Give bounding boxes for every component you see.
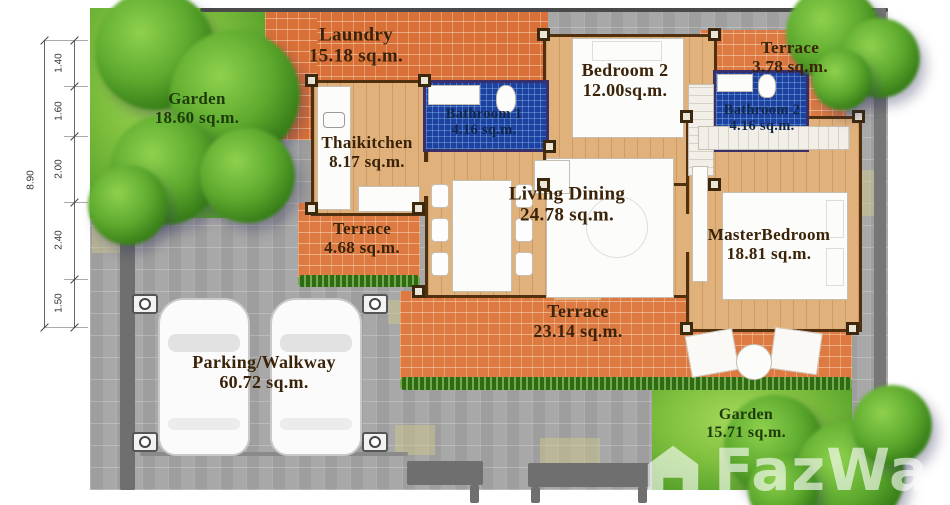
room-area: 60.72 sq.m.	[192, 372, 336, 392]
column-post	[708, 28, 721, 41]
column-post	[708, 178, 721, 191]
room-name: Living Dining	[509, 184, 625, 205]
hedge-west	[298, 275, 420, 287]
bathroom2-vanity	[717, 74, 753, 92]
tree	[200, 128, 295, 223]
room-area: 18.60 sq.m.	[155, 108, 240, 127]
column-post	[537, 28, 550, 41]
dining-chair	[431, 184, 449, 208]
paving-accent	[540, 438, 600, 464]
dimension-line-segments	[74, 40, 75, 328]
bedroom2-pillow	[592, 41, 662, 61]
boundary-wall-gate-a	[407, 461, 483, 485]
boundary-wall-gate-b	[528, 463, 650, 487]
room-name: MasterBedroom	[708, 225, 831, 244]
bathroom2-toilet	[758, 74, 776, 98]
column-post-round	[362, 294, 388, 314]
room-name: Terrace	[533, 301, 622, 321]
paving-accent	[395, 425, 435, 455]
tv-cabinet	[692, 166, 708, 282]
column-post	[846, 322, 859, 335]
room-area: 3.78 sq.m.	[752, 57, 828, 76]
room-name: Garden	[706, 406, 786, 424]
column-post	[412, 202, 425, 215]
dimension-segment-label: 2.40	[54, 230, 65, 249]
dining-table	[452, 180, 512, 292]
dining-chair	[515, 252, 533, 276]
label-parking: Parking/Walkway 60.72 sq.m.	[192, 352, 336, 392]
dimension-extension	[64, 202, 88, 203]
dining-chair	[431, 252, 449, 276]
label-thaikitchen: Thaikitchen 8.17 sq.m.	[321, 133, 412, 171]
room-area: 15.18 sq.m.	[309, 46, 403, 67]
room-area: 12.00sq.m.	[582, 80, 669, 100]
column-post-round	[132, 294, 158, 314]
room-name: Terrace	[324, 219, 400, 238]
room-name: Garden	[155, 89, 240, 108]
dimension-line-total	[44, 40, 45, 328]
label-terrace-south: Terrace 23.14 sq.m.	[533, 301, 622, 341]
column-post-round	[362, 432, 388, 452]
room-area: 23.14 sq.m.	[533, 321, 622, 341]
column-post	[680, 110, 693, 123]
column-post	[680, 322, 693, 335]
column-post	[418, 74, 431, 87]
label-garden-top: Garden 18.60 sq.m.	[155, 89, 240, 127]
column-post	[852, 110, 865, 123]
column-post	[305, 74, 318, 87]
dimension-total-label: 8.90	[26, 170, 37, 189]
room-area: 4.16 sq.m.	[724, 118, 800, 134]
hedge-south	[400, 377, 852, 390]
room-area: 18.81 sq.m.	[708, 244, 831, 263]
boundary-wall-top	[200, 8, 888, 12]
column-post-round	[132, 432, 158, 452]
column-post	[543, 140, 556, 153]
terrace-chair	[769, 327, 822, 375]
room-name: Thaikitchen	[321, 133, 412, 152]
label-bathroom2: Bathroom 2 4.16 sq.m.	[724, 102, 800, 134]
room-name: Bathroom 1	[446, 106, 522, 122]
dimension-extension	[44, 40, 88, 41]
label-bathroom1: Bathroom 1 4.16 sq.m.	[446, 106, 522, 138]
room-name: Bedroom 2	[582, 60, 669, 80]
room-name: Parking/Walkway	[192, 352, 336, 372]
kitchen-sink	[323, 112, 345, 128]
room-area: 24.78 sq.m.	[509, 205, 625, 226]
kitchen-table	[358, 186, 420, 212]
dimension-segment-label: 1.50	[54, 293, 65, 312]
room-area: 4.68 sq.m.	[324, 238, 400, 257]
room-area: 8.17 sq.m.	[321, 152, 412, 171]
dimension-segment-label: 1.60	[54, 101, 65, 120]
label-bedroom2: Bedroom 2 12.00sq.m.	[582, 60, 669, 100]
gate-stub	[531, 487, 540, 503]
terrace-chair	[685, 328, 740, 378]
label-master-bedroom: MasterBedroom 18.81 sq.m.	[708, 225, 831, 263]
dimension-extension	[64, 279, 88, 280]
dimension-segment-label: 1.40	[54, 53, 65, 72]
dimension-segment-label: 2.00	[54, 159, 65, 178]
bathroom1-vanity	[428, 85, 480, 105]
label-living-dining: Living Dining 24.78 sq.m.	[509, 184, 625, 227]
terrace-table	[736, 344, 772, 380]
fazwaz-house-logo-icon	[642, 439, 704, 501]
label-terrace-ne: Terrace 3.78 sq.m.	[752, 38, 828, 76]
column-post	[412, 285, 425, 298]
dining-chair	[431, 218, 449, 242]
watermark-text: FazWa	[714, 441, 929, 499]
dimension-extension	[64, 136, 88, 137]
watermark: FazWa	[642, 434, 950, 505]
column-post	[305, 202, 318, 215]
dimension-extension	[64, 86, 88, 87]
dimension-extension	[44, 327, 88, 328]
tree	[88, 165, 168, 245]
floor-plan: Garden 18.60 sq.m. Laundry 15.18 sq.m. T…	[0, 0, 950, 505]
label-terrace-kitchen: Terrace 4.68 sq.m.	[324, 219, 400, 257]
door-opening	[423, 162, 431, 196]
label-laundry: Laundry 15.18 sq.m.	[309, 25, 403, 68]
room-name: Terrace	[752, 38, 828, 57]
room-name: Bathroom 2	[724, 102, 800, 118]
room-name: Laundry	[309, 25, 403, 46]
room-area: 4.16 sq.m.	[446, 122, 522, 138]
gate-stub	[470, 485, 479, 503]
